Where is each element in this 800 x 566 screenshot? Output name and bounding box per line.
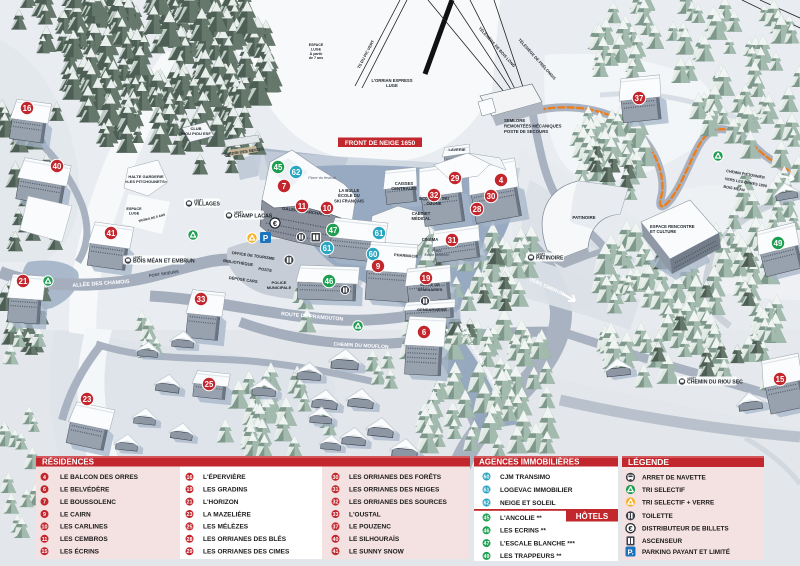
svg-text:LUGE: LUGE <box>311 47 322 51</box>
svg-text:Émile Médecin: Émile Médecin <box>425 252 450 257</box>
svg-text:9: 9 <box>43 512 46 518</box>
svg-text:46: 46 <box>325 277 334 286</box>
svg-text:46: 46 <box>484 528 490 534</box>
svg-text:TRI SELECTIF + VERRE: TRI SELECTIF + VERRE <box>642 499 715 506</box>
svg-text:PIOU PIOU ESF: PIOU PIOU ESF <box>181 131 211 136</box>
svg-text:MÉDICAL: MÉDICAL <box>411 216 431 221</box>
svg-text:11: 11 <box>298 202 307 211</box>
svg-text:60: 60 <box>369 250 378 259</box>
svg-text:23: 23 <box>83 395 92 404</box>
svg-text:LE BOUSSOLENC: LE BOUSSOLENC <box>60 499 116 506</box>
svg-text:TRI SELECTIF: TRI SELECTIF <box>642 487 685 494</box>
svg-text:LE SILHOURAÏS: LE SILHOURAÏS <box>349 535 400 543</box>
svg-text:11: 11 <box>42 537 48 543</box>
svg-text:21: 21 <box>19 277 28 286</box>
svg-text:SKI FRANÇAIS: SKI FRANÇAIS <box>334 198 364 203</box>
svg-text:ARRET DE NAVETTE: ARRET DE NAVETTE <box>642 475 707 482</box>
svg-text:LE BELVÉDÈRE: LE BELVÉDÈRE <box>60 485 110 494</box>
svg-text:33: 33 <box>333 512 339 518</box>
svg-text:21: 21 <box>187 500 193 506</box>
svg-text:41: 41 <box>107 229 116 238</box>
svg-text:10: 10 <box>323 204 332 213</box>
svg-text:LES ÉCRINS: LES ÉCRINS <box>60 547 100 556</box>
svg-text:FRONT DE NEIGE 1650: FRONT DE NEIGE 1650 <box>345 140 416 147</box>
svg-text:4: 4 <box>43 475 46 481</box>
svg-text:de 7 ans: de 7 ans <box>309 56 323 60</box>
svg-text:ESPACE: ESPACE <box>309 43 324 47</box>
svg-text:LES ECRINS **: LES ECRINS ** <box>500 528 546 535</box>
svg-text:45: 45 <box>484 516 490 522</box>
svg-text:LES ORRIANES DES CIMES: LES ORRIANES DES CIMES <box>203 549 290 556</box>
svg-text:40: 40 <box>333 537 339 543</box>
svg-text:À partir: À partir <box>310 51 323 56</box>
svg-text:PATINOIRE: PATINOIRE <box>536 256 564 262</box>
svg-text:28: 28 <box>473 205 482 214</box>
svg-text:6: 6 <box>422 328 427 337</box>
svg-text:7: 7 <box>43 500 46 506</box>
svg-text:DISTRIBUTEUR DE BILLETS: DISTRIBUTEUR DE BILLETS <box>642 526 729 533</box>
svg-text:BOIS MÉAN ET EMBRUN: BOIS MÉAN ET EMBRUN <box>133 257 195 265</box>
svg-text:AGENCES IMMOBILIÈRES: AGENCES IMMOBILIÈRES <box>479 458 580 467</box>
svg-text:ESPACE: ESPACE <box>126 207 142 211</box>
svg-text:23: 23 <box>187 512 193 518</box>
svg-text:19: 19 <box>187 487 193 493</box>
svg-text:CENTRALES: CENTRALES <box>391 186 417 191</box>
svg-text:CHEMIN DU RIOU SEC: CHEMIN DU RIOU SEC <box>687 380 743 386</box>
svg-text:PATINOIRE: PATINOIRE <box>572 215 595 220</box>
svg-text:29: 29 <box>451 174 460 183</box>
svg-text:PARKING PAYANT ET LIMITÉ: PARKING PAYANT ET LIMITÉ <box>642 547 731 556</box>
svg-text:47: 47 <box>484 541 490 547</box>
svg-text:40: 40 <box>53 162 62 171</box>
svg-text:31: 31 <box>333 487 339 493</box>
svg-text:37: 37 <box>333 524 339 530</box>
svg-text:9: 9 <box>376 262 381 271</box>
svg-text:16: 16 <box>23 104 32 113</box>
svg-text:45: 45 <box>274 163 283 172</box>
svg-text:LUGE: LUGE <box>386 83 398 88</box>
svg-text:LES ORRIANES DES NEIGES: LES ORRIANES DES NEIGES <box>349 487 440 494</box>
svg-text:LES ORRIANES DES SOURCES: LES ORRIANES DES SOURCES <box>349 499 448 506</box>
svg-text:31: 31 <box>448 236 457 245</box>
svg-text:LES MÉLÈZES: LES MÉLÈZES <box>203 522 249 531</box>
svg-text:L'OUSTAL: L'OUSTAL <box>349 511 381 518</box>
svg-text:41: 41 <box>333 549 339 555</box>
svg-text:30: 30 <box>333 475 339 481</box>
svg-text:Place du festival: Place du festival <box>308 176 336 180</box>
svg-text:HÔTELS: HÔTELS <box>576 512 609 521</box>
svg-text:P.: P. <box>627 547 633 556</box>
svg-text:P: P <box>263 234 269 243</box>
svg-text:62: 62 <box>292 168 301 177</box>
svg-text:LES ORRIANES DES BLÉS: LES ORRIANES DES BLÉS <box>203 534 287 543</box>
svg-text:61: 61 <box>484 488 490 494</box>
svg-text:TOILETTE: TOILETTE <box>642 513 674 520</box>
svg-text:19: 19 <box>422 274 431 283</box>
svg-text:49: 49 <box>484 554 490 560</box>
svg-text:LES TRAPPEURS **: LES TRAPPEURS ** <box>500 553 562 560</box>
svg-text:7: 7 <box>282 182 286 191</box>
svg-text:16: 16 <box>187 475 193 481</box>
svg-text:LES CARLINES: LES CARLINES <box>60 524 108 531</box>
svg-text:REMONTÉES MÉCANIQUES: REMONTÉES MÉCANIQUES <box>504 123 562 128</box>
svg-text:10: 10 <box>42 524 48 530</box>
svg-text:L'ANCOLIE **: L'ANCOLIE ** <box>500 515 542 522</box>
svg-text:30: 30 <box>487 192 496 201</box>
svg-text:POSTE DE SECOURS: POSTE DE SECOURS <box>504 129 548 134</box>
svg-text:LES GRADINS: LES GRADINS <box>203 487 248 494</box>
svg-text:LUGE: LUGE <box>129 212 140 216</box>
svg-text:61: 61 <box>323 244 332 253</box>
svg-text:LES ORRIANES DES FORÊTS: LES ORRIANES DES FORÊTS <box>349 472 442 481</box>
svg-text:49: 49 <box>774 239 783 248</box>
svg-text:61: 61 <box>375 229 384 238</box>
svg-text:SÉMINAIRES: SÉMINAIRES <box>418 287 443 292</box>
svg-text:37: 37 <box>635 94 644 103</box>
svg-text:32: 32 <box>430 191 439 200</box>
svg-text:CJM TRANSIMO: CJM TRANSIMO <box>500 474 550 481</box>
svg-text:15: 15 <box>42 549 48 555</box>
svg-text:CHAMP LACAS: CHAMP LACAS <box>234 214 273 220</box>
svg-text:LÉGENDE: LÉGENDE <box>628 457 669 467</box>
svg-text:L'HORIZON: L'HORIZON <box>203 499 239 506</box>
svg-text:25: 25 <box>205 380 214 389</box>
svg-text:ET CULTURE: ET CULTURE <box>650 229 676 234</box>
svg-text:15: 15 <box>776 375 785 384</box>
svg-text:29: 29 <box>187 549 193 555</box>
svg-text:GENDARMERIE: GENDARMERIE <box>417 307 447 312</box>
svg-text:LOGEVAC IMMOBILIER: LOGEVAC IMMOBILIER <box>500 487 573 494</box>
svg-text:RÉSIDENCES: RÉSIDENCES <box>42 458 95 467</box>
svg-text:LE SUNNY SNOW: LE SUNNY SNOW <box>349 549 405 556</box>
svg-text:32: 32 <box>333 500 339 506</box>
svg-text:NEIGE ET SOLEIL: NEIGE ET SOLEIL <box>500 500 556 507</box>
svg-text:LE BALCON DES ORRES: LE BALCON DES ORRES <box>60 474 139 481</box>
svg-text:LE POUZENC: LE POUZENC <box>349 524 391 531</box>
svg-text:LAVERIE: LAVERIE <box>448 147 465 152</box>
svg-text:25: 25 <box>187 524 193 530</box>
svg-text:47: 47 <box>329 226 338 235</box>
svg-text:VILLAGES: VILLAGES <box>194 202 220 208</box>
svg-text:4: 4 <box>499 176 504 185</box>
svg-text:33: 33 <box>197 295 206 304</box>
svg-text:LES CEMBROS: LES CEMBROS <box>60 536 108 543</box>
svg-text:L'ESCALE BLANCHE ***: L'ESCALE BLANCHE *** <box>500 540 575 547</box>
svg-text:MUNICIPALE: MUNICIPALE <box>267 285 292 290</box>
svg-text:62: 62 <box>484 501 490 507</box>
svg-text:SEMLORE: SEMLORE <box>504 118 525 123</box>
svg-text:60: 60 <box>484 475 490 481</box>
svg-text:L'ÉPERVIÈRE: L'ÉPERVIÈRE <box>203 472 246 481</box>
svg-text:«LES PITCHOUNETS»: «LES PITCHOUNETS» <box>125 179 168 184</box>
svg-text:CINÉMA: CINÉMA <box>422 237 439 242</box>
svg-text:LA MAZELIÈRE: LA MAZELIÈRE <box>203 509 251 518</box>
svg-text:28: 28 <box>187 537 193 543</box>
svg-text:ASCENSEUR: ASCENSEUR <box>642 538 683 545</box>
svg-text:LE CAIRN: LE CAIRN <box>60 511 91 518</box>
svg-text:6: 6 <box>43 487 46 493</box>
